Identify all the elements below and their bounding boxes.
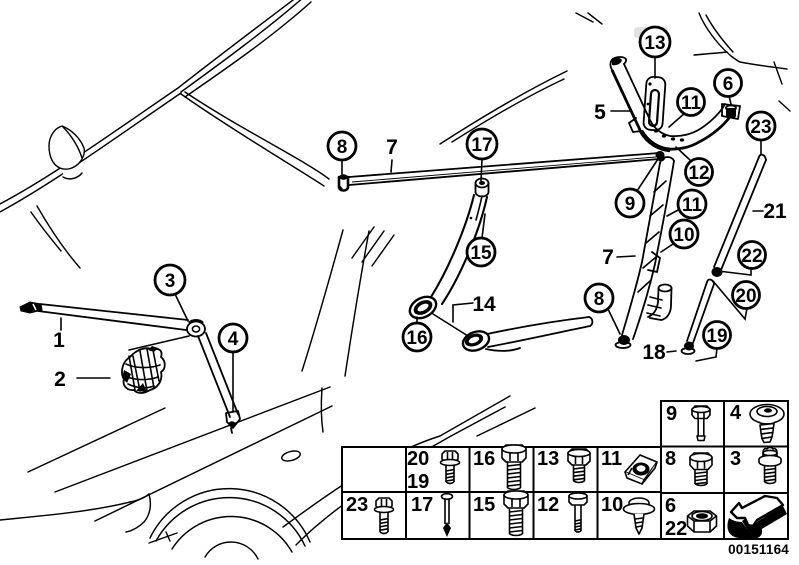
svg-text:16: 16 xyxy=(406,328,427,349)
svg-text:14: 14 xyxy=(472,293,496,316)
svg-text:5: 5 xyxy=(594,101,606,124)
svg-text:11: 11 xyxy=(601,448,622,470)
svg-text:12: 12 xyxy=(537,494,559,516)
svg-text:13: 13 xyxy=(537,448,559,470)
svg-text:20: 20 xyxy=(735,286,756,307)
svg-text:12: 12 xyxy=(688,163,709,184)
svg-text:16: 16 xyxy=(473,448,495,470)
svg-text:00151164: 00151164 xyxy=(728,542,789,557)
svg-text:10: 10 xyxy=(601,494,623,516)
svg-text:17: 17 xyxy=(471,135,492,156)
svg-text:22: 22 xyxy=(741,246,762,267)
svg-text:4: 4 xyxy=(730,402,742,424)
svg-text:9: 9 xyxy=(625,194,636,215)
svg-text:7: 7 xyxy=(386,136,398,159)
svg-text:11: 11 xyxy=(682,195,703,216)
svg-text:8: 8 xyxy=(337,137,348,158)
svg-text:23: 23 xyxy=(750,117,771,138)
svg-text:15: 15 xyxy=(470,243,492,264)
svg-text:6: 6 xyxy=(723,74,734,95)
svg-text:22: 22 xyxy=(665,518,687,540)
svg-text:11: 11 xyxy=(681,93,702,114)
svg-text:3: 3 xyxy=(730,448,741,470)
svg-text:9: 9 xyxy=(666,403,677,425)
svg-text:13: 13 xyxy=(644,33,665,54)
svg-text:8: 8 xyxy=(665,448,676,470)
svg-text:15: 15 xyxy=(473,494,495,516)
svg-text:20: 20 xyxy=(407,448,429,470)
svg-text:4: 4 xyxy=(228,329,239,350)
svg-text:2: 2 xyxy=(54,368,66,391)
svg-text:3: 3 xyxy=(165,271,176,292)
svg-text:21: 21 xyxy=(763,200,787,223)
svg-text:17: 17 xyxy=(411,494,433,516)
svg-text:23: 23 xyxy=(346,494,368,516)
svg-text:6: 6 xyxy=(665,495,676,517)
svg-text:19: 19 xyxy=(706,326,727,347)
svg-text:18: 18 xyxy=(642,341,666,364)
svg-text:19: 19 xyxy=(407,471,429,493)
svg-text:10: 10 xyxy=(673,225,694,246)
svg-text:8: 8 xyxy=(594,289,605,310)
svg-text:1: 1 xyxy=(53,329,65,352)
svg-text:7: 7 xyxy=(602,246,614,269)
